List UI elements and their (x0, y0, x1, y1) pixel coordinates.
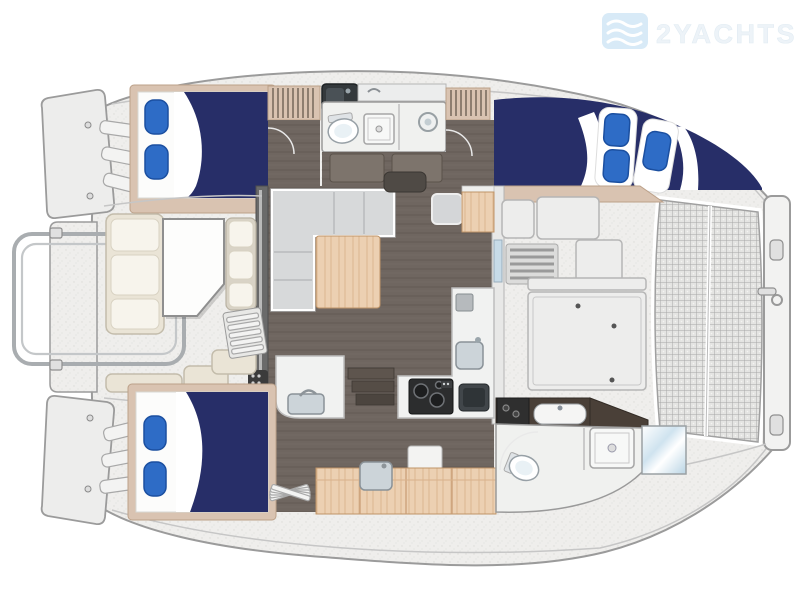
cockpit-bench-left (106, 214, 164, 334)
cabinet-sink (360, 462, 392, 490)
galley-lower-counter (276, 356, 344, 418)
faucet-icon (558, 406, 563, 411)
entry-step (384, 172, 426, 192)
port-hanging-locker-aft (268, 86, 320, 120)
forward-cabin (494, 97, 762, 202)
pillow (144, 462, 166, 496)
shower-head-center (425, 119, 432, 126)
faucet-icon (382, 464, 387, 469)
pillow (144, 416, 166, 450)
companionway-steps-port (223, 307, 268, 358)
stool (432, 194, 462, 224)
shower-drain-icon (608, 444, 616, 452)
pillow (145, 145, 168, 179)
floor-plan-canvas: 2YACHTS (0, 0, 800, 600)
salon (248, 172, 504, 512)
cockpit-bench-right (226, 218, 256, 310)
galley-sink (456, 342, 483, 369)
deck-screw (87, 193, 93, 199)
faucet-icon (475, 337, 481, 343)
stove-icon (409, 379, 453, 414)
watermark: 2YACHTS (602, 13, 797, 49)
pillow (145, 100, 168, 134)
bow (655, 196, 790, 450)
watermark-brand: 2YACHTS (656, 19, 797, 49)
lower-sink (288, 394, 324, 414)
deck-screw (85, 122, 91, 128)
port-head (322, 102, 446, 152)
shower-drain-icon (376, 126, 382, 132)
starboard-aft-cabin (128, 384, 276, 520)
port-hanging-locker-fwd (446, 88, 490, 120)
bench-seat (502, 200, 534, 238)
beam-fitting (770, 240, 783, 260)
aft-cockpit (104, 195, 267, 404)
pillow-stack (594, 107, 637, 189)
catamaran-floor-plan: 2YACHTS (0, 0, 800, 600)
hallway-door (330, 154, 384, 182)
salon-table (316, 236, 380, 308)
second-sink (459, 384, 489, 411)
mirror-hatch (642, 426, 686, 474)
beam-fitting (770, 415, 783, 435)
forward-door-glass (494, 240, 502, 282)
deck-screw (87, 415, 93, 421)
port-fwd-cabin-floor (446, 120, 494, 186)
appliance-unit (497, 398, 529, 426)
deck-screw (85, 486, 91, 492)
forward-crossbeam (764, 196, 790, 450)
cabinet-top (462, 186, 494, 192)
hatch-strip (528, 278, 646, 290)
counter-appliance (456, 294, 473, 311)
wood-cabinet (462, 192, 494, 232)
bench-seat (537, 197, 599, 239)
port-aft-cabin (130, 85, 276, 213)
large-deck-hatch (528, 292, 646, 390)
bathroom-counter (358, 84, 446, 101)
fridge-front (408, 446, 442, 470)
galley-cabinets (316, 462, 496, 514)
bow-cleat (758, 288, 776, 295)
